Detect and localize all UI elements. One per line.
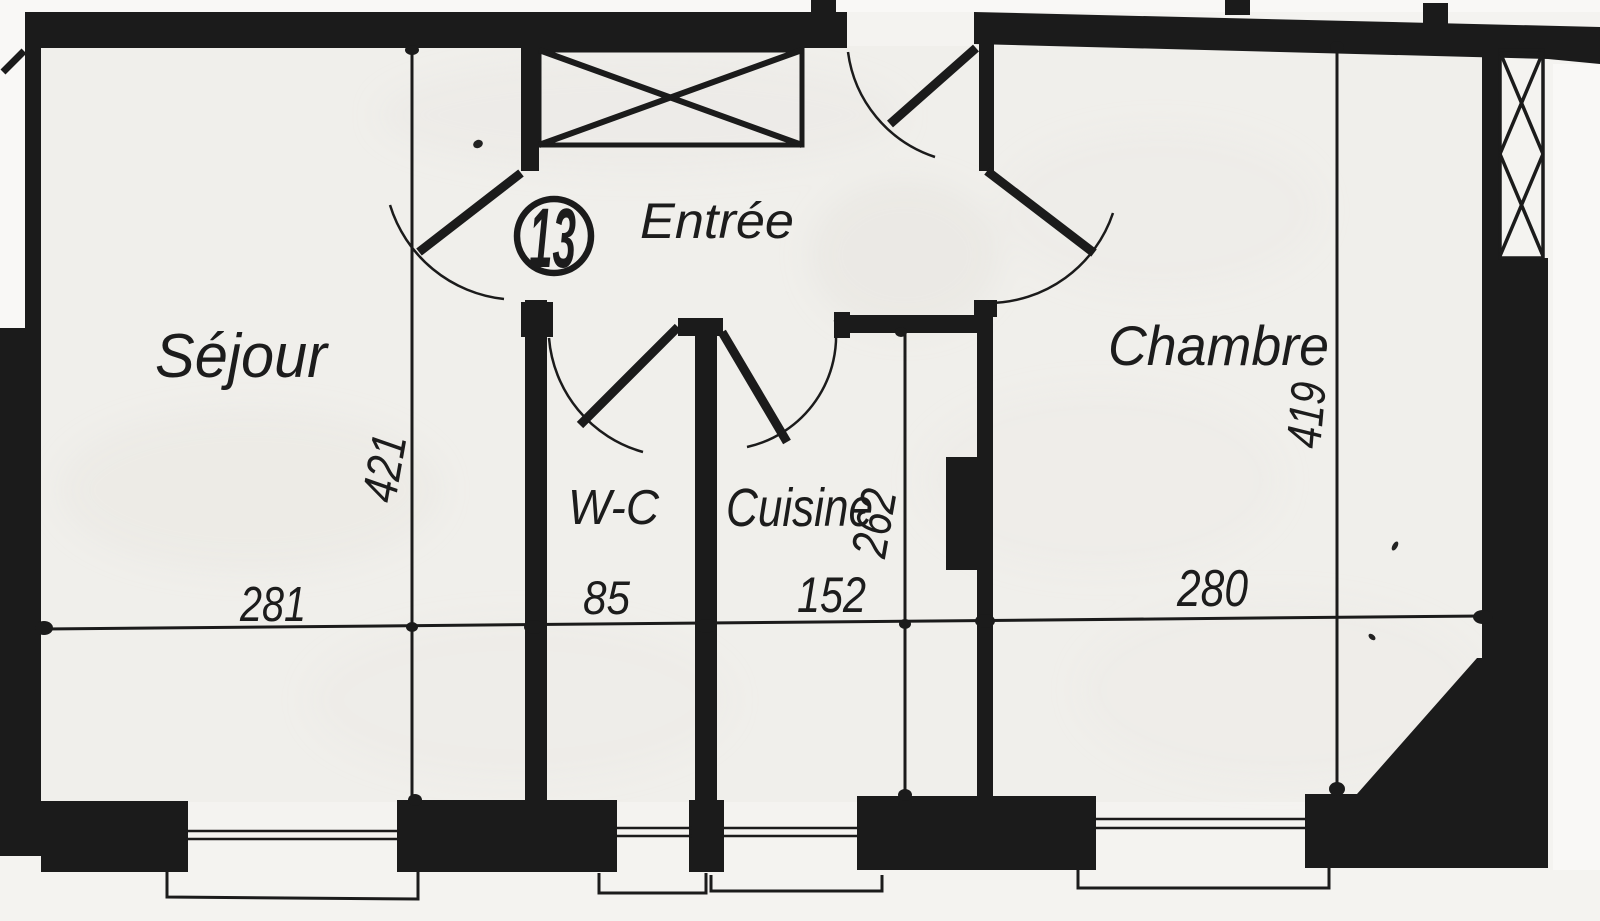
svg-text:281: 281 bbox=[239, 578, 306, 632]
svg-text:85: 85 bbox=[583, 571, 631, 624]
svg-text:419: 419 bbox=[1277, 380, 1337, 450]
svg-text:W-C: W-C bbox=[568, 481, 660, 535]
svg-text:Chambre: Chambre bbox=[1108, 314, 1329, 377]
svg-text:Entrée: Entrée bbox=[640, 193, 794, 249]
svg-text:280: 280 bbox=[1176, 560, 1248, 618]
svg-text:13: 13 bbox=[529, 191, 576, 285]
svg-text:152: 152 bbox=[797, 567, 866, 623]
svg-text:262: 262 bbox=[840, 485, 907, 563]
svg-text:Séjour: Séjour bbox=[155, 322, 329, 391]
